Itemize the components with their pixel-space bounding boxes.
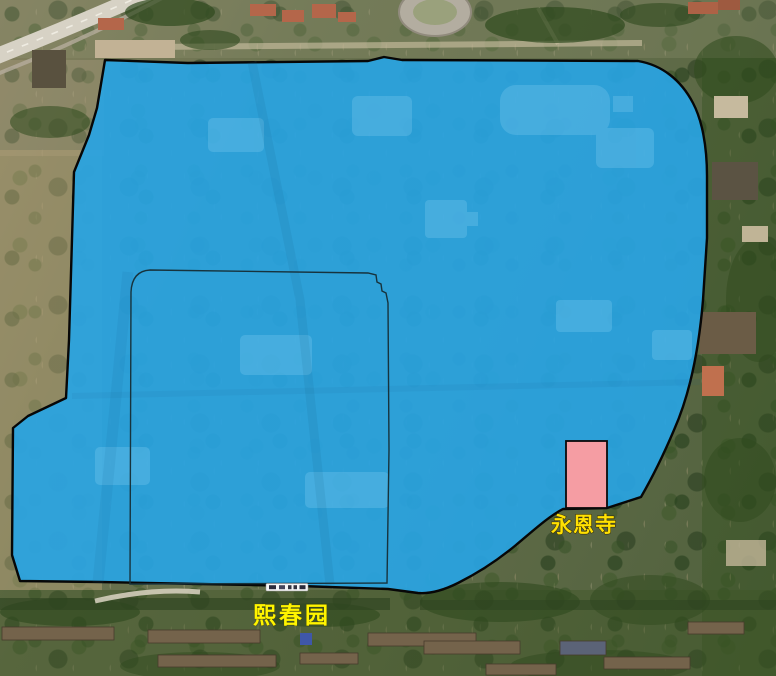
south-gate-structure	[266, 584, 308, 592]
hedge-row-left	[0, 598, 390, 610]
map-viewport[interactable]: 永恩寺 熙春园	[0, 0, 776, 676]
label-yongensi: 永恩寺	[550, 513, 617, 537]
label-xichunyuan: 熙春园	[253, 603, 331, 629]
blue-roof-structure	[300, 633, 312, 645]
hedge-row-right	[420, 600, 776, 610]
region-temple-block[interactable]	[566, 441, 607, 508]
map-annotation-layer: 永恩寺 熙春园	[0, 0, 776, 676]
stadium-infield	[413, 0, 457, 25]
